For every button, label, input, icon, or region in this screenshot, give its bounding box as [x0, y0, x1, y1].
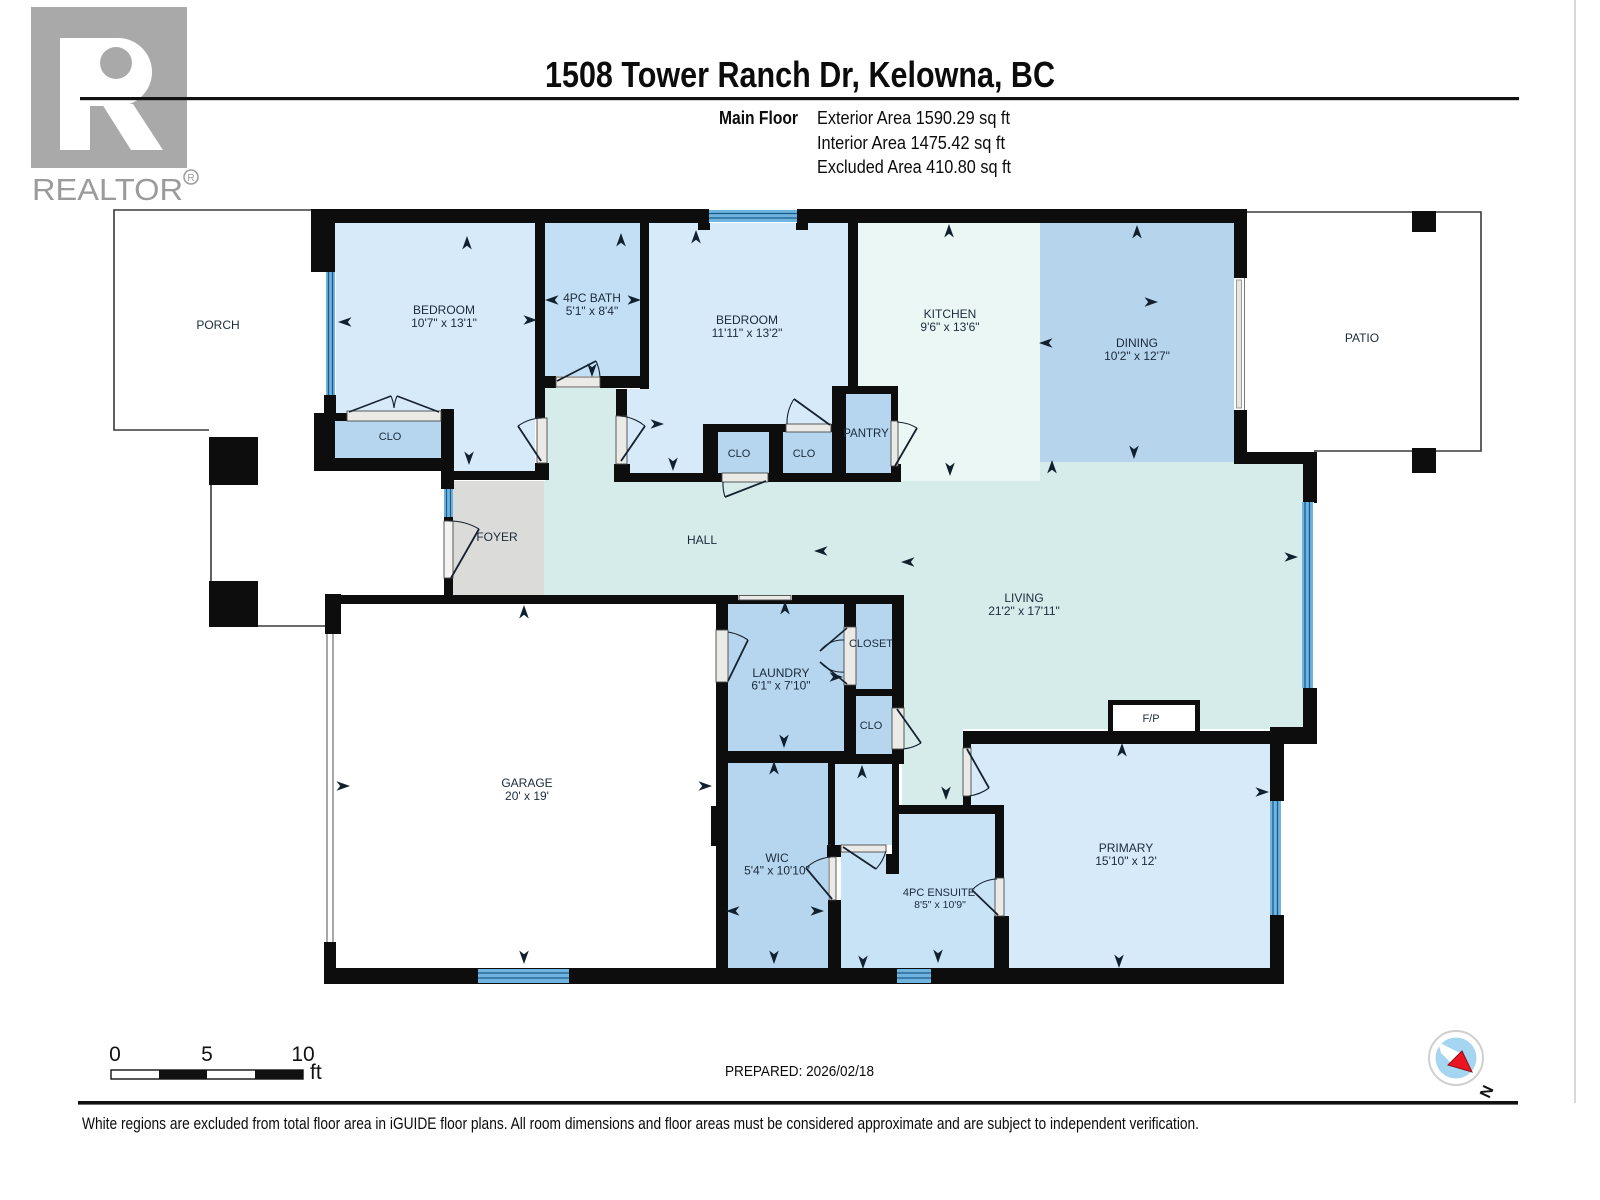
svg-text:HALL: HALL: [687, 533, 717, 547]
svg-text:21'2" x 17'11": 21'2" x 17'11": [988, 604, 1060, 618]
svg-text:11'11" x 13'2": 11'11" x 13'2": [712, 326, 783, 340]
svg-text:15'10" x 12': 15'10" x 12': [1095, 854, 1157, 868]
svg-text:PRIMARY: PRIMARY: [1099, 841, 1153, 855]
svg-text:0: 0: [109, 1043, 121, 1066]
svg-text:Exterior Area 1590.29 sq ft: Exterior Area 1590.29 sq ft: [817, 108, 1010, 128]
svg-text:KITCHEN: KITCHEN: [924, 307, 977, 321]
svg-text:R: R: [187, 173, 194, 184]
svg-text:BEDROOM: BEDROOM: [413, 303, 475, 317]
svg-text:CLOSET: CLOSET: [849, 638, 893, 650]
svg-text:Main Floor: Main Floor: [719, 108, 798, 128]
svg-text:ft: ft: [310, 1061, 322, 1084]
svg-text:F/P: F/P: [1142, 713, 1159, 725]
svg-text:10'7" x 13'1": 10'7" x 13'1": [411, 316, 477, 330]
svg-text:BEDROOM: BEDROOM: [716, 313, 778, 327]
svg-text:PREPARED: 2026/02/18: PREPARED: 2026/02/18: [725, 1063, 874, 1080]
svg-text:5'1" x 8'4": 5'1" x 8'4": [566, 304, 618, 318]
svg-text:GARAGE: GARAGE: [501, 776, 552, 790]
svg-text:FOYER: FOYER: [476, 530, 518, 544]
svg-text:20' x 19': 20' x 19': [505, 789, 549, 803]
svg-text:CLO: CLO: [860, 720, 883, 732]
svg-text:CLO: CLO: [793, 448, 816, 460]
svg-text:Excluded Area 410.80 sq ft: Excluded Area 410.80 sq ft: [817, 157, 1011, 177]
svg-text:White regions are excluded fro: White regions are excluded from total fl…: [82, 1114, 1199, 1133]
svg-text:4PC ENSUITE: 4PC ENSUITE: [903, 887, 975, 899]
svg-text:REALTOR: REALTOR: [32, 172, 183, 207]
svg-text:CLO: CLO: [728, 448, 751, 460]
svg-text:1508 Tower Ranch Dr, Kelowna,: 1508 Tower Ranch Dr, Kelowna, BC: [545, 54, 1055, 95]
svg-text:PATIO: PATIO: [1345, 331, 1379, 345]
svg-text:5'4" x 10'10": 5'4" x 10'10": [744, 864, 810, 878]
svg-text:PORCH: PORCH: [196, 318, 239, 332]
svg-text:10'2" x 12'7": 10'2" x 12'7": [1104, 349, 1170, 363]
svg-text:Interior Area 1475.42 sq ft: Interior Area 1475.42 sq ft: [817, 133, 1005, 153]
svg-text:5: 5: [201, 1043, 213, 1066]
svg-text:6'1" x 7'10": 6'1" x 7'10": [751, 679, 810, 693]
svg-text:DINING: DINING: [1116, 336, 1158, 350]
svg-text:LIVING: LIVING: [1004, 591, 1043, 605]
svg-text:PANTRY: PANTRY: [843, 428, 889, 440]
svg-text:CLO: CLO: [379, 431, 402, 443]
svg-text:4PC BATH: 4PC BATH: [563, 291, 621, 305]
svg-text:9'6" x 13'6": 9'6" x 13'6": [920, 320, 979, 334]
svg-text:8'5" x 10'9": 8'5" x 10'9": [914, 899, 966, 911]
